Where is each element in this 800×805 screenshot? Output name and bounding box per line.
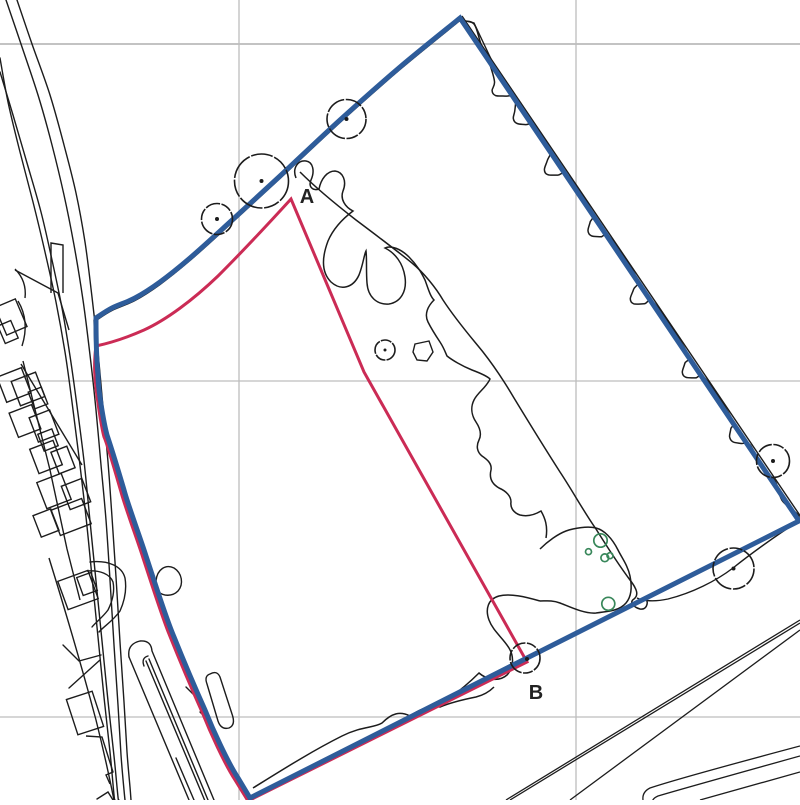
svg-text:A: A bbox=[300, 186, 314, 208]
svg-text:B: B bbox=[529, 682, 543, 704]
